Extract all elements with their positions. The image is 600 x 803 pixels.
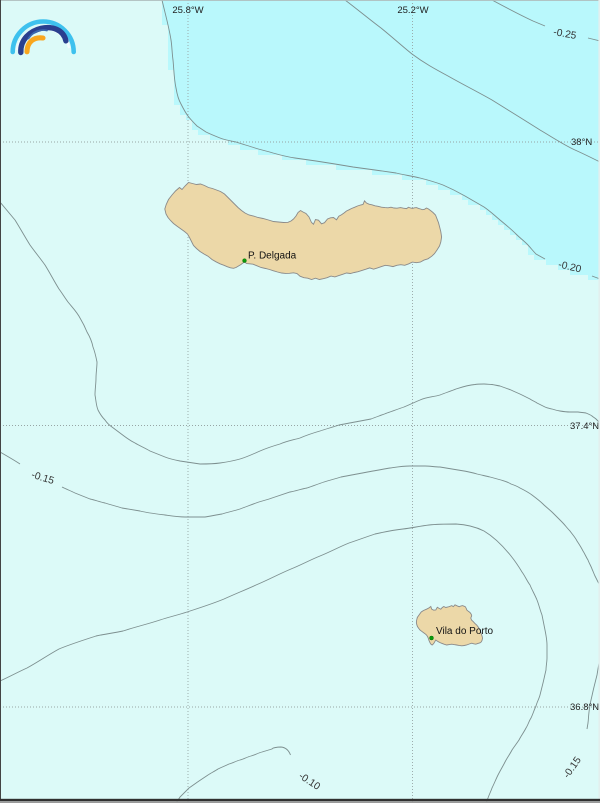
svg-text:37.4°N: 37.4°N <box>570 421 599 432</box>
svg-text:Vila do Porto: Vila do Porto <box>436 626 494 637</box>
svg-text:38°N: 38°N <box>571 137 592 148</box>
svg-text:25.8°W: 25.8°W <box>172 5 203 16</box>
svg-text:25.2°W: 25.2°W <box>397 5 428 16</box>
svg-text:P. Delgada: P. Delgada <box>248 251 297 262</box>
svg-text:36.8°N: 36.8°N <box>570 702 599 713</box>
